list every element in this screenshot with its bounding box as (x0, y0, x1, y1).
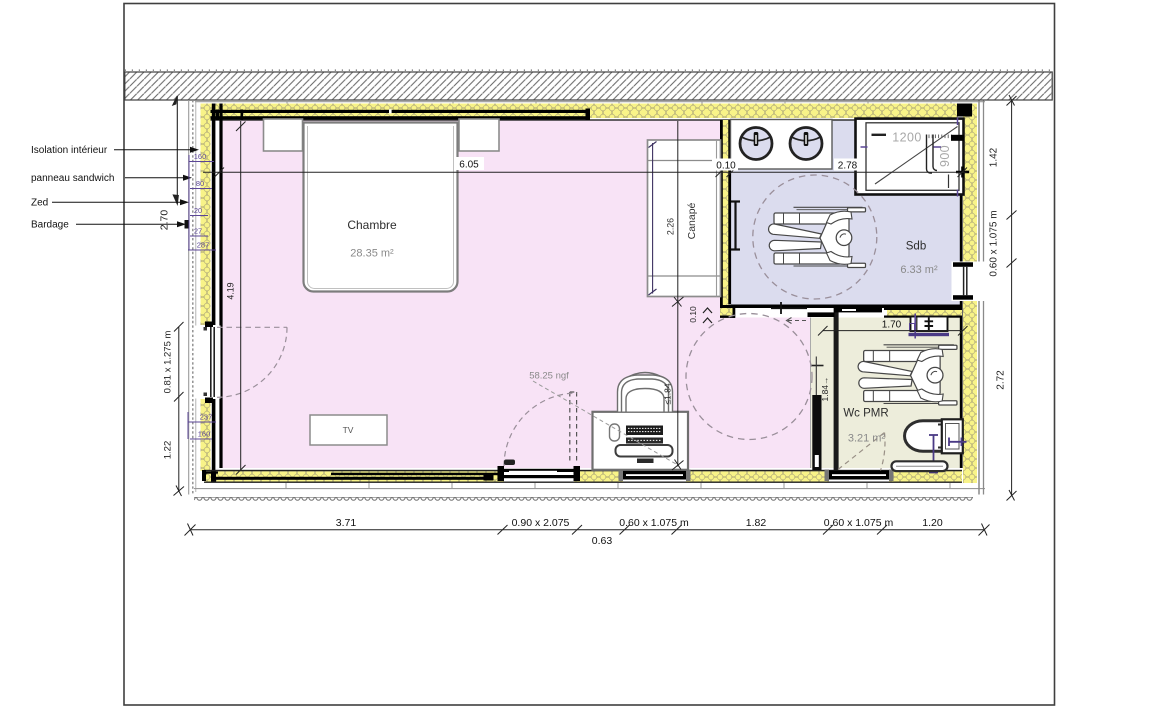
svg-text:Isolation intérieur: Isolation intérieur (31, 145, 108, 156)
svg-text:1.82: 1.82 (746, 517, 767, 529)
svg-text:900: 900 (938, 145, 952, 167)
svg-text:58.25 ngf: 58.25 ngf (529, 371, 569, 382)
svg-text:2.70: 2.70 (159, 210, 171, 231)
svg-text:27: 27 (194, 227, 202, 236)
svg-text:1200: 1200 (892, 131, 921, 145)
svg-text:Chambre: Chambre (347, 218, 397, 232)
svg-text:160: 160 (194, 152, 207, 161)
svg-text:0.81 x 1.275 m: 0.81 x 1.275 m (163, 330, 174, 393)
svg-text:0.90 x 2.075: 0.90 x 2.075 (512, 517, 570, 529)
svg-text:28.35 m²: 28.35 m² (350, 248, 394, 260)
svg-text:0.60 x 1.075 m: 0.60 x 1.075 m (989, 210, 1000, 276)
svg-text:4.19: 4.19 (226, 282, 236, 299)
svg-text:80: 80 (196, 179, 204, 188)
svg-text:0.60 x 1.075 m: 0.60 x 1.075 m (824, 517, 894, 529)
svg-text:panneau sandwich: panneau sandwich (31, 173, 114, 184)
svg-text:0.63: 0.63 (592, 535, 613, 547)
svg-text:TV: TV (343, 425, 354, 435)
svg-text:2.26: 2.26 (666, 218, 676, 235)
svg-text:1.84→: 1.84→ (820, 376, 830, 401)
svg-text:6.33 m²: 6.33 m² (900, 264, 938, 276)
svg-text:20: 20 (194, 206, 202, 215)
svg-text:≤1.84: ≤1.84 (663, 383, 673, 404)
svg-text:Bardage: Bardage (31, 220, 69, 231)
svg-text:1.22: 1.22 (163, 441, 174, 460)
svg-text:1.20: 1.20 (922, 517, 943, 529)
svg-text:3.71: 3.71 (336, 517, 357, 529)
svg-text:Canapé: Canapé (686, 202, 698, 239)
svg-text:237: 237 (200, 413, 213, 422)
svg-text:2.72: 2.72 (996, 370, 1007, 390)
svg-text:0.10: 0.10 (716, 161, 736, 172)
svg-text:160: 160 (198, 430, 211, 439)
svg-text:Sdb: Sdb (906, 241, 926, 253)
svg-text:287: 287 (197, 241, 210, 250)
svg-text:1.70: 1.70 (882, 320, 902, 331)
svg-text:6.05: 6.05 (459, 160, 479, 171)
svg-text:0.10: 0.10 (688, 306, 698, 323)
svg-text:Wc PMR: Wc PMR (843, 408, 888, 420)
svg-text:1.42: 1.42 (989, 147, 1000, 167)
svg-text:Zed: Zed (31, 198, 48, 209)
svg-text:3.21 m²: 3.21 m² (848, 433, 886, 445)
svg-text:2.78: 2.78 (838, 161, 858, 172)
svg-text:0.60 x 1.075 m: 0.60 x 1.075 m (619, 517, 689, 529)
